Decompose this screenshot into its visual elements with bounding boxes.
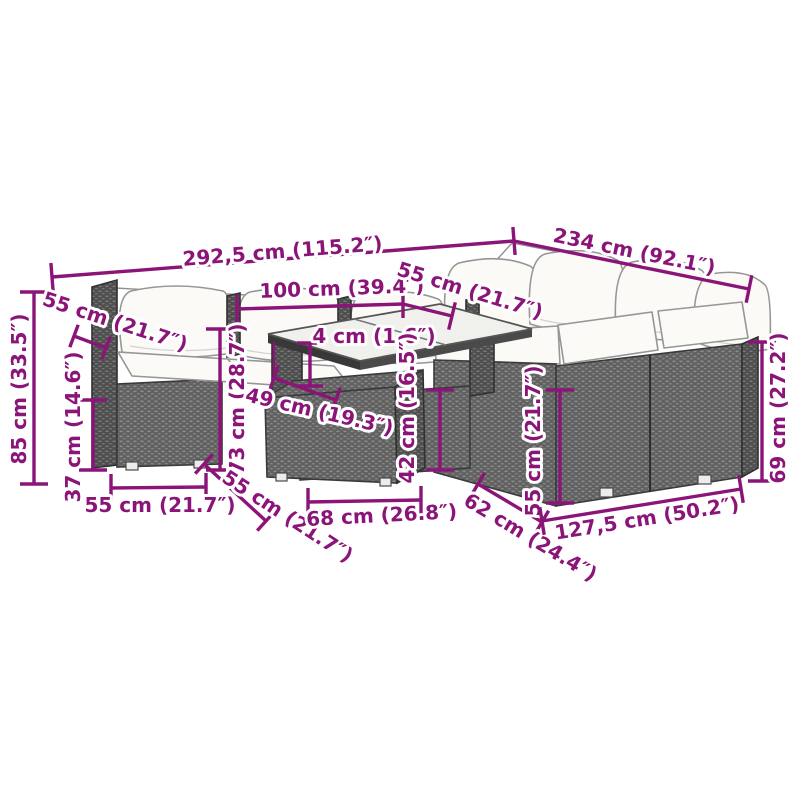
dimension-tick — [51, 263, 53, 291]
footstool-foot — [380, 478, 391, 486]
dimension-label-seat-width-front-left: 55 cm (21.7″) — [84, 493, 235, 517]
dimension-label-footstool-width: 68 cm (26.8″) — [306, 499, 458, 531]
sofa-foot — [698, 475, 711, 484]
left-sofa-base — [117, 379, 222, 467]
dimension-line — [111, 487, 206, 488]
footstool-foot — [276, 473, 287, 481]
sofa-foot — [126, 462, 138, 470]
diagram-canvas: 292,5 cm (115.2″) 234 cm (92.1″) 85 cm (… — [0, 0, 800, 800]
sofa-foot — [600, 488, 613, 497]
dimension-label-armrest-height-right: 69 cm (27.2″) — [766, 332, 790, 483]
dimension-label-overall-width: 292,5 cm (115.2″) — [182, 231, 384, 271]
dimension-diagram: 292,5 cm (115.2″) 234 cm (92.1″) 85 cm (… — [0, 0, 800, 800]
dimension-tick — [739, 475, 743, 503]
dimension-seat-width-front-left: 55 cm (21.7″) — [84, 473, 235, 517]
dimension-footstool-width: 68 cm (26.8″) — [306, 486, 458, 531]
dimension-label-total-height: 85 cm (33.5″) — [7, 313, 31, 464]
dimension-label-seat-width-right: 55 cm (21.7″) — [521, 365, 545, 516]
dimension-total-height: 85 cm (33.5″) — [7, 292, 48, 484]
dimension-label-seat-height: 37 cm (14.6″) — [61, 351, 85, 502]
right-armrest — [742, 337, 758, 477]
dimension-label-footstool-height: 42 cm (16.5″) — [395, 332, 419, 483]
